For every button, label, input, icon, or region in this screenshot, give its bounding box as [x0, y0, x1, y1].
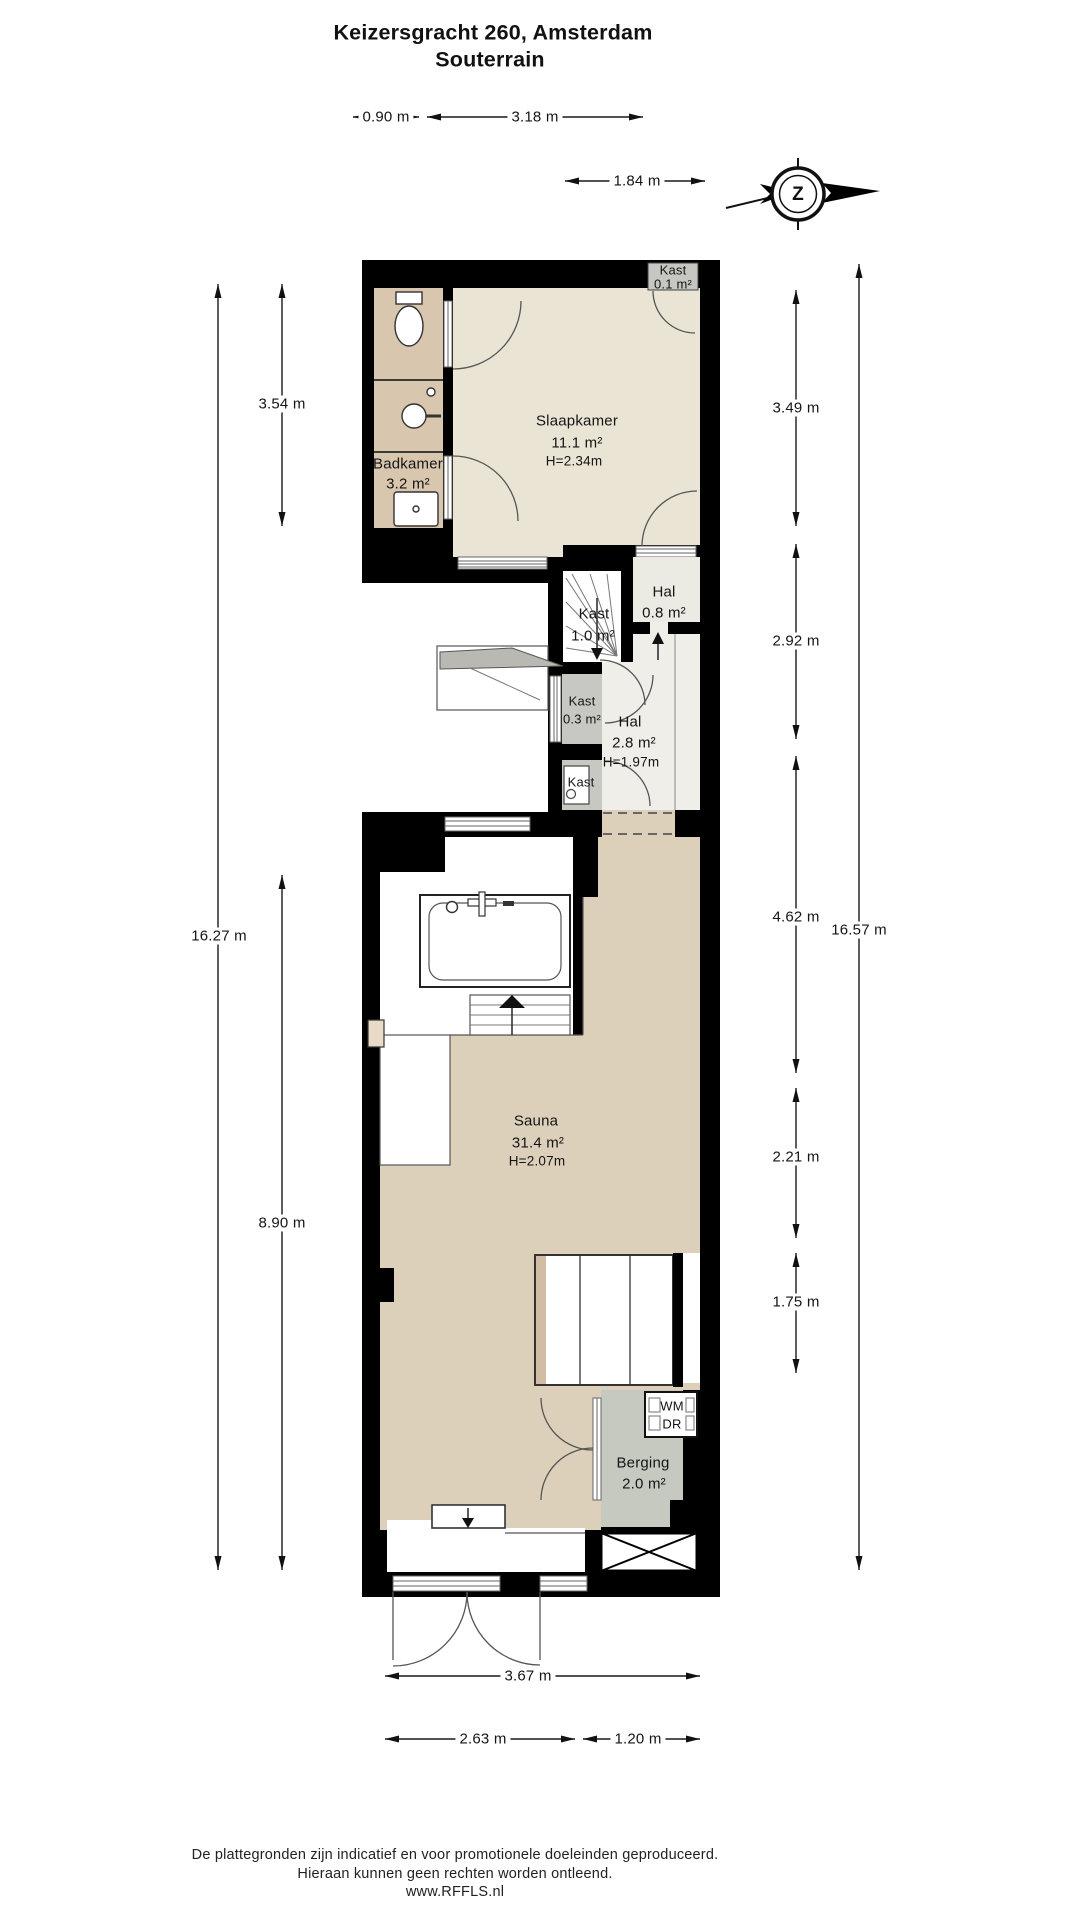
dim-left-1: 3.54 m	[254, 396, 309, 413]
hal-main-height: H=1.97m	[603, 755, 660, 770]
footer-website: www.RFFLS.nl	[406, 1884, 504, 1900]
slaapkamer-area: 11.1 m²	[551, 435, 602, 452]
vestibule-floor	[598, 837, 700, 897]
hal-main-label: Hal	[618, 714, 641, 731]
floor-plan-page: Keizersgracht 260, Amsterdam Souterrain …	[0, 0, 1080, 1920]
kast-mid-area: 0.3 m²	[563, 712, 601, 727]
wm-label: WM	[660, 1399, 684, 1414]
chimney-block	[368, 1020, 384, 1047]
dim-bottom-2: 2.63 m	[455, 1731, 510, 1748]
dr-label: DR	[662, 1417, 681, 1432]
entry-doors	[393, 1592, 540, 1666]
footer-disclaimer-2: Hieraan kunnen geen rechten worden ontle…	[297, 1866, 612, 1882]
badkamer-area: 3.2 m²	[386, 476, 430, 493]
dim-right-2: 2.92 m	[768, 633, 823, 650]
floor-plan-drawing	[0, 0, 1080, 1920]
closet-nook	[380, 1035, 450, 1165]
footer-disclaimer-1: De plattegronden zijn indicatief en voor…	[192, 1847, 719, 1863]
shower-tray	[394, 492, 438, 526]
kast-mid-label: Kast	[569, 694, 596, 709]
sink	[402, 404, 426, 428]
compass-south-letter: Z	[792, 184, 804, 206]
kast-stairs-label: Kast	[579, 606, 610, 623]
dim-right-total: 16.57 m	[827, 922, 891, 939]
kast-stairs-area: 1.0 m²	[571, 628, 615, 645]
berging-area: 2.0 m²	[622, 1476, 666, 1493]
shaft	[601, 1533, 697, 1571]
hal-small-label: Hal	[652, 584, 675, 601]
dim-bottom-3: 1.20 m	[610, 1731, 665, 1748]
dim-right-1: 3.49 m	[768, 400, 823, 417]
dim-top-2: 3.18 m	[507, 109, 562, 126]
sauna-area: 31.4 m²	[512, 1135, 564, 1152]
slaapkamer-height: H=2.34m	[546, 454, 603, 469]
dim-right-4: 2.21 m	[768, 1149, 823, 1166]
front-windows	[393, 1576, 587, 1591]
dim-right-3: 4.62 m	[768, 909, 823, 926]
kast-top-area: 0.1 m²	[654, 277, 692, 292]
hal-main-area: 2.8 m²	[612, 735, 656, 752]
slaapkamer-label: Slaapkamer	[536, 413, 618, 430]
sauna-label: Sauna	[514, 1113, 558, 1130]
sauna-height: H=2.07m	[509, 1154, 566, 1169]
toilet-bowl	[395, 306, 423, 346]
dim-right-5: 1.75 m	[768, 1294, 823, 1311]
lower-section	[368, 817, 700, 1666]
sauna-stairs	[470, 995, 570, 1035]
dim-bottom-1: 3.67 m	[500, 1668, 555, 1685]
dim-top-3: 1.84 m	[609, 173, 664, 190]
bed	[535, 1255, 673, 1385]
page-subtitle: Souterrain	[435, 48, 545, 73]
dim-left-3: 8.90 m	[254, 1215, 309, 1232]
page-title: Keizersgracht 260, Amsterdam	[333, 21, 652, 46]
berging-label: Berging	[616, 1455, 669, 1472]
kast-mid-floor	[562, 674, 602, 744]
wall-pilaster	[380, 1268, 394, 1302]
window	[445, 817, 530, 831]
hal-small-area: 0.8 m²	[642, 605, 686, 622]
dim-left-2: 16.27 m	[187, 928, 251, 945]
kast-boiler-label: Kast	[568, 775, 595, 790]
entry-step	[432, 1505, 505, 1528]
bathtub	[420, 892, 570, 987]
kast-top-label: Kast	[660, 263, 687, 278]
dim-top-1: 0.90 m	[358, 109, 413, 126]
badkamer-label: Badkamer	[373, 456, 443, 473]
toilet-cistern	[396, 292, 422, 304]
